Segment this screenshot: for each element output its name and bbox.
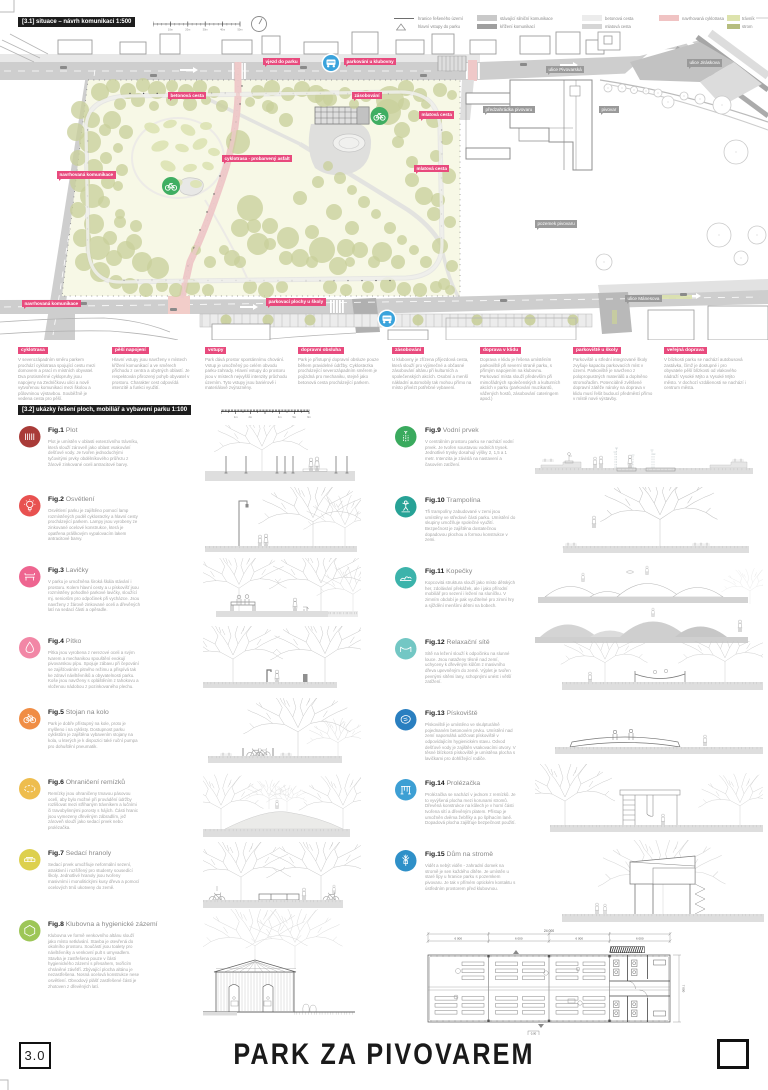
svg-text:40m: 40m (220, 28, 225, 32)
svg-text:30m: 30m (203, 28, 208, 32)
svg-text:6 000: 6 000 (575, 937, 583, 941)
svg-text:1m: 1m (234, 415, 238, 419)
svg-text:50m: 50m (237, 28, 242, 32)
svg-text:10m: 10m (168, 28, 173, 32)
svg-text:6 000: 6 000 (515, 937, 523, 941)
svg-text:6 000: 6 000 (636, 937, 644, 941)
svg-text:5m: 5m (292, 415, 296, 419)
svg-text:20m: 20m (185, 28, 190, 32)
svg-text:2m: 2m (248, 415, 252, 419)
svg-text:24 000: 24 000 (544, 929, 554, 933)
svg-text:6 000: 6 000 (454, 937, 462, 941)
svg-text:4m: 4m (278, 415, 282, 419)
svg-text:7 000: 7 000 (682, 985, 686, 993)
svg-text:6m: 6m (307, 415, 311, 419)
svg-text:0,00: 0,00 (531, 1032, 537, 1035)
